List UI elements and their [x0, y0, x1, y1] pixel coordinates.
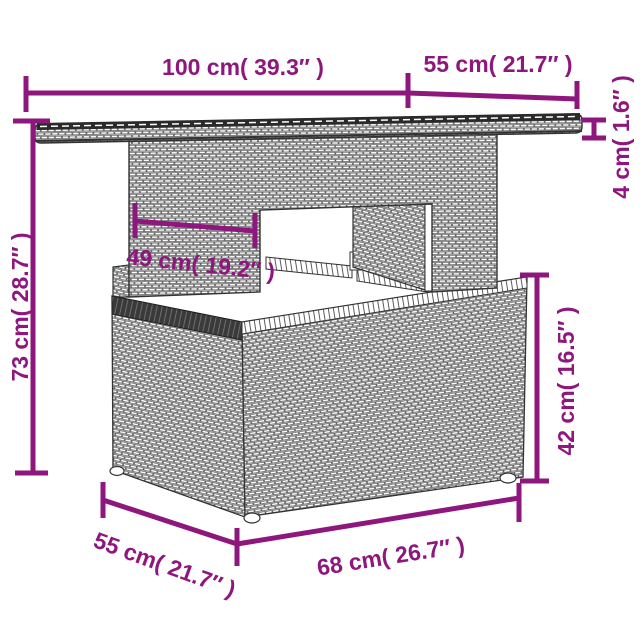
dim-label-total-height: 73 cm( 28.7″ )	[7, 232, 33, 381]
dim-label-top-length: 100 cm( 39.3″ )	[162, 54, 324, 80]
dimension-top-thickness: 4 cm( 1.6″ )	[582, 75, 634, 199]
dimension-diagram: 100 cm( 39.3″ ) 55 cm( 21.7″ ) 4 cm( 1.6…	[0, 0, 640, 640]
dimension-top-length: 100 cm( 39.3″ )	[26, 54, 408, 112]
dim-label-top-thickness: 4 cm( 1.6″ )	[608, 75, 634, 199]
diagram-canvas: 100 cm( 39.3″ ) 55 cm( 21.7″ ) 4 cm( 1.6…	[0, 0, 640, 640]
furniture-illustration	[35, 113, 582, 523]
dim-label-base-height: 42 cm( 16.5″ )	[553, 306, 579, 455]
dimension-base-height: 42 cm( 16.5″ )	[520, 275, 579, 481]
base-foot-center	[244, 513, 260, 523]
dim-label-base-length: 68 cm( 26.7″ )	[315, 532, 466, 581]
dim-label-top-depth: 55 cm( 21.7″ )	[423, 51, 572, 77]
base-foot-left	[110, 467, 124, 476]
dimension-top-depth: 55 cm( 21.7″ )	[408, 51, 577, 109]
dim-line	[408, 93, 577, 99]
base-back-left-post	[113, 265, 129, 297]
base-foot-right	[500, 473, 516, 483]
opening-back-rail-left	[266, 257, 352, 278]
dimension-total-height: 73 cm( 28.7″ )	[7, 121, 50, 473]
base-right-face	[242, 277, 527, 517]
